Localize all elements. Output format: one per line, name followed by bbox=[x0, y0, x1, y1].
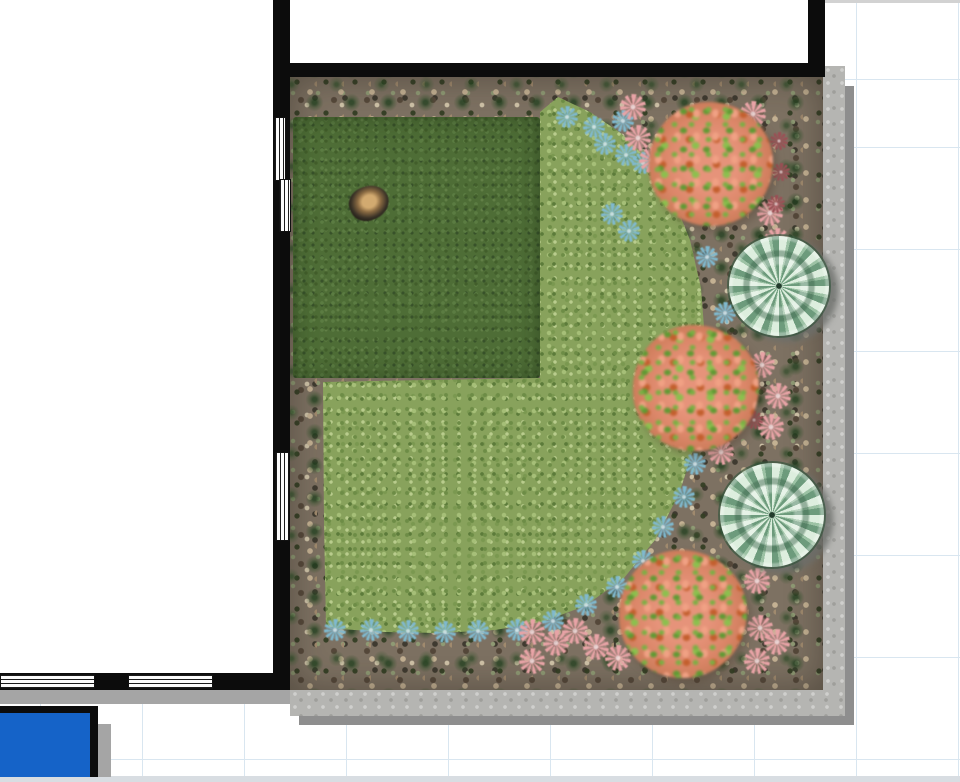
window-left-upper-a[interactable] bbox=[274, 117, 286, 181]
pink-flower[interactable] bbox=[764, 629, 790, 655]
pink-flower[interactable] bbox=[605, 645, 631, 671]
border-shadow-bottom bbox=[299, 716, 854, 725]
floor-plan-canvas bbox=[0, 0, 960, 782]
blue-flower[interactable] bbox=[673, 486, 695, 508]
pink-flower[interactable] bbox=[620, 94, 646, 120]
pool-shadow bbox=[98, 724, 111, 777]
blue-flower[interactable] bbox=[594, 133, 616, 155]
house-interior-floor bbox=[0, 0, 273, 673]
plan-scene bbox=[0, 0, 960, 782]
maroon-flower[interactable] bbox=[770, 132, 788, 150]
pink-flower[interactable] bbox=[519, 648, 545, 674]
pink-flower[interactable] bbox=[519, 619, 545, 645]
window-left-lower[interactable] bbox=[275, 452, 289, 541]
paved-border-bottom bbox=[290, 690, 845, 716]
blue-flower[interactable] bbox=[601, 203, 623, 225]
blue-flower[interactable] bbox=[618, 220, 640, 242]
canvas-bottom-edge bbox=[0, 776, 960, 782]
pink-flower[interactable] bbox=[744, 568, 770, 594]
lawn-square[interactable] bbox=[293, 117, 540, 378]
blue-flower[interactable] bbox=[542, 610, 564, 632]
pool[interactable] bbox=[0, 706, 98, 777]
house-interior-floor bbox=[273, 0, 808, 63]
blue-flower[interactable] bbox=[652, 516, 674, 538]
blue-flower[interactable] bbox=[324, 619, 346, 641]
blue-flower[interactable] bbox=[556, 106, 578, 128]
maroon-flower[interactable] bbox=[767, 195, 785, 213]
blue-flower[interactable] bbox=[684, 453, 706, 475]
cactus-upper[interactable] bbox=[729, 236, 829, 336]
left-wall[interactable] bbox=[273, 0, 290, 690]
bush-bottom[interactable] bbox=[619, 550, 747, 678]
bush-top[interactable] bbox=[649, 102, 773, 226]
pink-flower[interactable] bbox=[744, 648, 770, 674]
blue-flower[interactable] bbox=[434, 621, 456, 643]
window-bottom-mid[interactable] bbox=[128, 674, 213, 689]
blue-flower[interactable] bbox=[397, 620, 419, 642]
top-wall[interactable] bbox=[273, 63, 825, 77]
maroon-flower[interactable] bbox=[772, 163, 790, 181]
blue-flower[interactable] bbox=[575, 594, 597, 616]
cactus-lower[interactable] bbox=[720, 463, 824, 567]
wall-drop-shadow bbox=[0, 690, 290, 704]
window-bottom-left[interactable] bbox=[0, 674, 95, 689]
blue-flower[interactable] bbox=[360, 619, 382, 641]
bush-middle[interactable] bbox=[633, 325, 759, 451]
paved-border-right bbox=[823, 66, 845, 716]
top-right-wall[interactable] bbox=[808, 0, 825, 77]
blue-flower[interactable] bbox=[696, 246, 718, 268]
window-left-upper-b[interactable] bbox=[279, 179, 291, 232]
blue-flower[interactable] bbox=[467, 620, 489, 642]
pink-flower[interactable] bbox=[765, 383, 791, 409]
border-shadow-right bbox=[845, 86, 854, 725]
